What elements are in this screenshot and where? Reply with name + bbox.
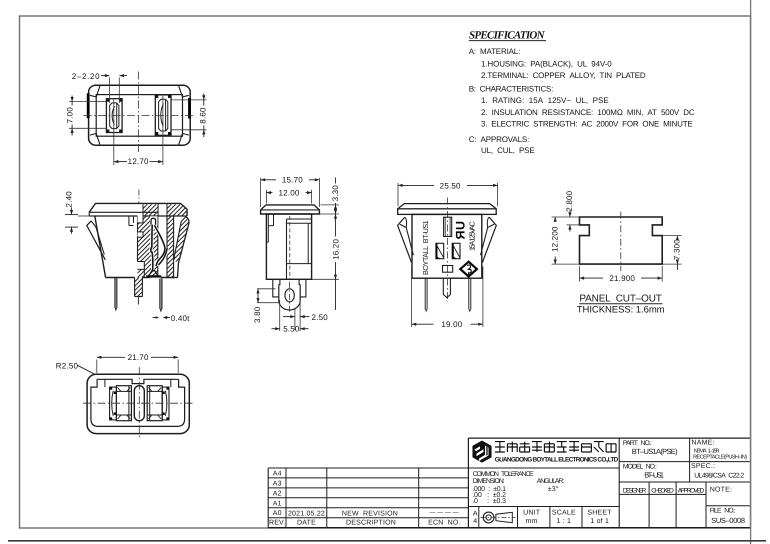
svg-text:2.800: 2.800 [565,190,574,211]
svg-text:12.200: 12.200 [550,226,559,252]
svg-text:7.00: 7.00 [65,107,74,124]
svg-text:0.40t: 0.40t [171,314,190,323]
svg-text:C: APPROVALS:: C: APPROVALS: [469,135,530,144]
svg-text:3.80: 3.80 [253,306,262,323]
svg-text:2.40: 2.40 [64,191,73,208]
svg-text:A0: A0 [273,510,282,517]
svg-text:NOTE:: NOTE: [710,487,732,494]
svg-text:GUANGDONG BOYTALL ELECTRONICS: GUANGDONG BOYTALL ELECTRONICS CO.,LTD [495,456,619,463]
svg-text:3.30: 3.30 [331,185,340,202]
svg-text:THICKNESS: 1.6mm: THICKNESS: 1.6mm [577,305,665,316]
svg-text:21.70: 21.70 [128,353,149,362]
svg-text:PANEL CUT–OUT: PANEL CUT–OUT [579,294,662,305]
svg-text:BT–US1: BT–US1 [644,471,664,480]
svg-text:19.00: 19.00 [441,320,462,329]
svg-text:— — — —: — — — — [429,510,458,516]
svg-text:DATE: DATE [297,520,316,527]
svg-text:R2.50: R2.50 [56,361,79,370]
svg-text:3. ELECTRIC STRENGTH: AC 2: 3. ELECTRIC STRENGTH: AC 2000V FOR ONE M… [481,120,693,129]
svg-text:±3°: ±3° [548,486,559,493]
svg-text:DESIGNER: DESIGNER [623,488,647,495]
svg-text:1.HOUSING: PA(BLACK), UL 94: 1.HOUSING: PA(BLACK), UL 94V-0 [481,60,612,69]
svg-text:ANGULAR:: ANGULAR: [537,478,565,485]
svg-text:15A 125VAC: 15A 125VAC [467,221,476,251]
svg-text:SPEC.:: SPEC.: [691,463,715,470]
svg-text:A3: A3 [273,480,282,487]
svg-text:mm: mm [526,518,538,525]
svg-text:B: CHARACTERISTICS:: B: CHARACTERISTICS: [469,85,554,94]
svg-text:8.60: 8.60 [198,107,207,124]
svg-text:21.900: 21.900 [609,274,635,283]
svg-text:.0 : ±0.3: .0 : ±0.3 [472,498,506,505]
svg-text:1 : 1: 1 : 1 [556,518,571,525]
svg-text:4: 4 [473,518,477,525]
svg-text:A: MATERIAL:: A: MATERIAL: [469,47,521,56]
svg-text:2.TERMINAL: COPPER ALLOY, T: 2.TERMINAL: COPPER ALLOY, TIN PLATED [481,71,646,80]
svg-text:ECN NO.: ECN NO. [428,520,461,527]
svg-text:UNIT: UNIT [523,509,541,516]
svg-text:FILE NO.:: FILE NO.: [710,507,736,514]
svg-text:A: A [473,510,478,517]
svg-text:APPROVED: APPROVED [678,488,705,495]
svg-text:A1: A1 [273,500,282,507]
svg-text:7.300: 7.300 [673,239,682,260]
svg-text:2021.05.22: 2021.05.22 [288,510,325,517]
svg-text:REV.: REV. [269,520,286,527]
svg-text:PART NO.:: PART NO.: [623,440,652,447]
svg-text:DESCRIPTION: DESCRIPTION [346,520,396,527]
svg-text:12.00: 12.00 [278,189,299,198]
svg-text:COMMON TOLERANCE: COMMON TOLERANCE [473,471,534,478]
svg-text:12.70: 12.70 [128,157,149,166]
svg-text:A4: A4 [273,471,282,478]
svg-text:RECEPTACLE(PUSH–IN): RECEPTACLE(PUSH–IN) [693,453,747,460]
svg-text:UL498/CSA C22.2: UL498/CSA C22.2 [694,473,744,480]
svg-text:2. INSULATION RESISTANCE: 1: 2. INSULATION RESISTANCE: 100MΩ MIN, AT … [481,108,695,117]
svg-text:SHEET: SHEET [587,509,612,516]
svg-text:1 of 1: 1 of 1 [590,517,609,525]
svg-text:CHECKED: CHECKED [651,488,674,495]
svg-text:BT–US1A(PSE): BT–US1A(PSE) [632,447,678,456]
svg-text:1. RATING: 15A 125V~ UL,: 1. RATING: 15A 125V~ UL, PSE [481,96,609,105]
svg-text:UL, CUL, PSE: UL, CUL, PSE [481,146,535,155]
svg-text:SPECIFICATION: SPECIFICATION [469,29,546,41]
svg-text:SCALE: SCALE [552,509,576,516]
svg-text:16.20: 16.20 [332,239,341,260]
svg-text:2.50: 2.50 [312,313,329,322]
svg-text:A2: A2 [273,490,282,497]
svg-text:DIMENSION:: DIMENSION: [473,478,505,485]
svg-text:15.70: 15.70 [282,176,303,185]
svg-text:25.50: 25.50 [440,181,461,190]
svg-text:NAME:: NAME: [692,439,715,446]
svg-text:ЯU: ЯU [453,220,467,239]
svg-text:SUS–0008: SUS–0008 [711,516,745,525]
svg-text:NEW REVISION: NEW REVISION [342,510,398,517]
svg-text:5.50: 5.50 [283,325,300,334]
svg-text:BOYTALL BT-US1: BOYTALL BT-US1 [421,220,430,275]
svg-text:2–2.20: 2–2.20 [72,72,100,81]
